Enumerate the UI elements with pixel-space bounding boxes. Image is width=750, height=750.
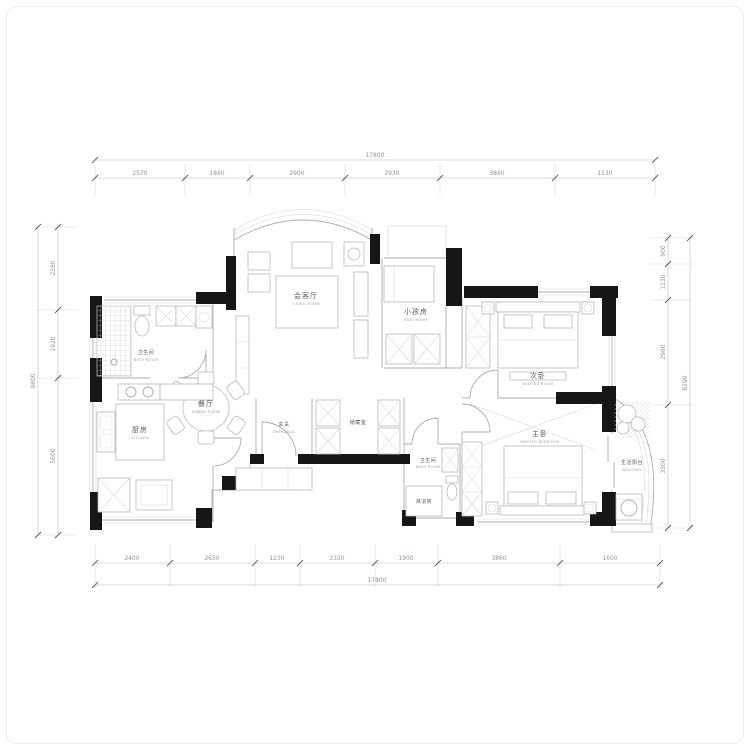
armchair <box>248 274 270 292</box>
living-room-label-cn: 会客厅 <box>294 291 318 300</box>
wardrobe <box>462 442 482 516</box>
washbasin <box>196 306 212 328</box>
kitchen-label-en: KITCHEN <box>131 436 149 440</box>
pillow <box>544 315 572 328</box>
second-bedroom-label-cn: 次卧 <box>530 371 546 380</box>
chair <box>198 372 214 385</box>
counter <box>160 384 213 400</box>
balcony-label-en: BALCONY <box>622 468 642 472</box>
dim-bottom-seg-4: 1900 <box>398 555 413 562</box>
tv-cabinet <box>354 272 368 316</box>
stove <box>118 384 160 400</box>
dim-top-seg-2: 2900 <box>289 170 304 177</box>
dim-top-seg-1: 1860 <box>209 170 224 177</box>
dim-right-seg-1: 1130 <box>660 274 667 289</box>
storage-label-cn: 储藏室 <box>350 419 367 426</box>
nightstand <box>486 502 498 514</box>
plant <box>617 422 629 434</box>
dimension-right: 900 1130 2960 3300 8290 <box>650 235 693 531</box>
speaker-icon <box>348 248 360 260</box>
nightstand <box>584 502 596 514</box>
entrance-label-en: ENTRANCE <box>273 430 295 434</box>
dim-top-seg-4: 3860 <box>489 170 504 177</box>
storage-cabinets <box>316 400 400 454</box>
second-bedroom-label-en: SECOND ROOM <box>522 382 553 386</box>
dim-left-seg-1: 1920 <box>50 336 57 351</box>
dimension-top: 17800 2570 1860 2900 2930 3860 1130 <box>92 152 658 195</box>
plant <box>631 417 645 431</box>
dim-bottom-seg-0: 2400 <box>124 555 139 562</box>
dim-left-seg-0: 2280 <box>50 260 57 275</box>
bathroom2-label-en: BATH ROOM <box>416 465 441 469</box>
shower-label-cn: 淋浴房 <box>416 498 433 505</box>
dim-right-seg-2: 2960 <box>660 344 667 359</box>
dining-label-cn: 餐厅 <box>198 399 214 408</box>
bathroom1-label-en: BATH ROOM <box>134 358 159 362</box>
dim-right-total: 8290 <box>682 375 689 390</box>
entrance-label-cn: 玄关 <box>278 421 289 428</box>
hall-cabinet <box>236 468 312 490</box>
dim-bottom-total: 17800 <box>367 577 386 584</box>
dim-top-seg-3: 2930 <box>384 170 399 177</box>
dim-bottom-seg-6: 1600 <box>602 555 617 562</box>
kids-bed <box>384 266 434 302</box>
toilet <box>135 316 149 336</box>
bed-headboard <box>500 506 584 515</box>
kitchen-label-cn: 厨房 <box>132 425 148 434</box>
nightstand <box>582 302 594 314</box>
pillow <box>546 492 576 504</box>
kids-room-label-cn: 小孩房 <box>404 307 428 316</box>
dimension-left: 9800 2280 1920 5600 <box>30 224 78 538</box>
dim-top-seg-5: 1130 <box>597 170 612 177</box>
toilet-tank <box>134 306 150 315</box>
toilet-tank <box>446 476 458 483</box>
pillow <box>508 492 538 504</box>
dimension-bottom: 2400 2650 1230 2330 1900 3860 1600 17800 <box>92 545 663 588</box>
sofa <box>292 242 332 268</box>
armchair <box>248 252 270 270</box>
chair <box>166 415 186 436</box>
master-bedroom-furniture <box>462 404 596 516</box>
shower-tile-floor <box>97 306 131 376</box>
second-bedroom-furniture <box>466 302 594 380</box>
kids-room-label-en: KIDS ROOM <box>404 318 428 322</box>
dining-label-en: DINING ROOM <box>192 410 221 414</box>
dim-top-seg-0: 2570 <box>132 170 147 177</box>
dim-top-total: 17800 <box>365 152 384 159</box>
chair <box>198 431 214 444</box>
balcony-sill <box>612 524 652 532</box>
master-bedroom-label-cn: 主卧 <box>532 429 548 438</box>
bathroom2-label-cn: 卫生间 <box>420 457 437 464</box>
bathroom1-label-cn: 卫生间 <box>138 349 155 356</box>
dim-right-seg-0: 900 <box>660 245 667 257</box>
toilet <box>447 484 457 500</box>
floor-plan-canvas: 17800 2570 1860 2900 2930 3860 1130 2400… <box>0 0 750 750</box>
bathroom1-fixtures <box>97 306 212 376</box>
dim-bottom-seg-3: 2330 <box>329 555 344 562</box>
dim-bottom-seg-5: 3860 <box>491 555 506 562</box>
living-room-furniture <box>236 242 368 394</box>
dim-left-total: 9800 <box>30 373 37 388</box>
ac-platform <box>388 226 446 258</box>
bed-headboard <box>496 302 580 312</box>
balcony-label-cn: 生活阳台 <box>621 459 643 466</box>
chair <box>226 415 246 436</box>
master-bedroom-label-en: MASTER BEDROOM <box>521 440 560 444</box>
furniture <box>97 242 650 520</box>
tv-cabinet <box>354 320 368 358</box>
nightstand <box>482 302 494 314</box>
dim-left-seg-2: 5600 <box>50 448 57 463</box>
living-room-label-en: LIVING ROOM <box>292 302 320 306</box>
kitchen-table <box>136 480 172 510</box>
dim-right-seg-3: 3300 <box>660 458 667 473</box>
dim-bottom-seg-2: 1230 <box>269 555 284 562</box>
dim-bottom-seg-1: 2650 <box>204 555 219 562</box>
pillow <box>504 315 532 328</box>
